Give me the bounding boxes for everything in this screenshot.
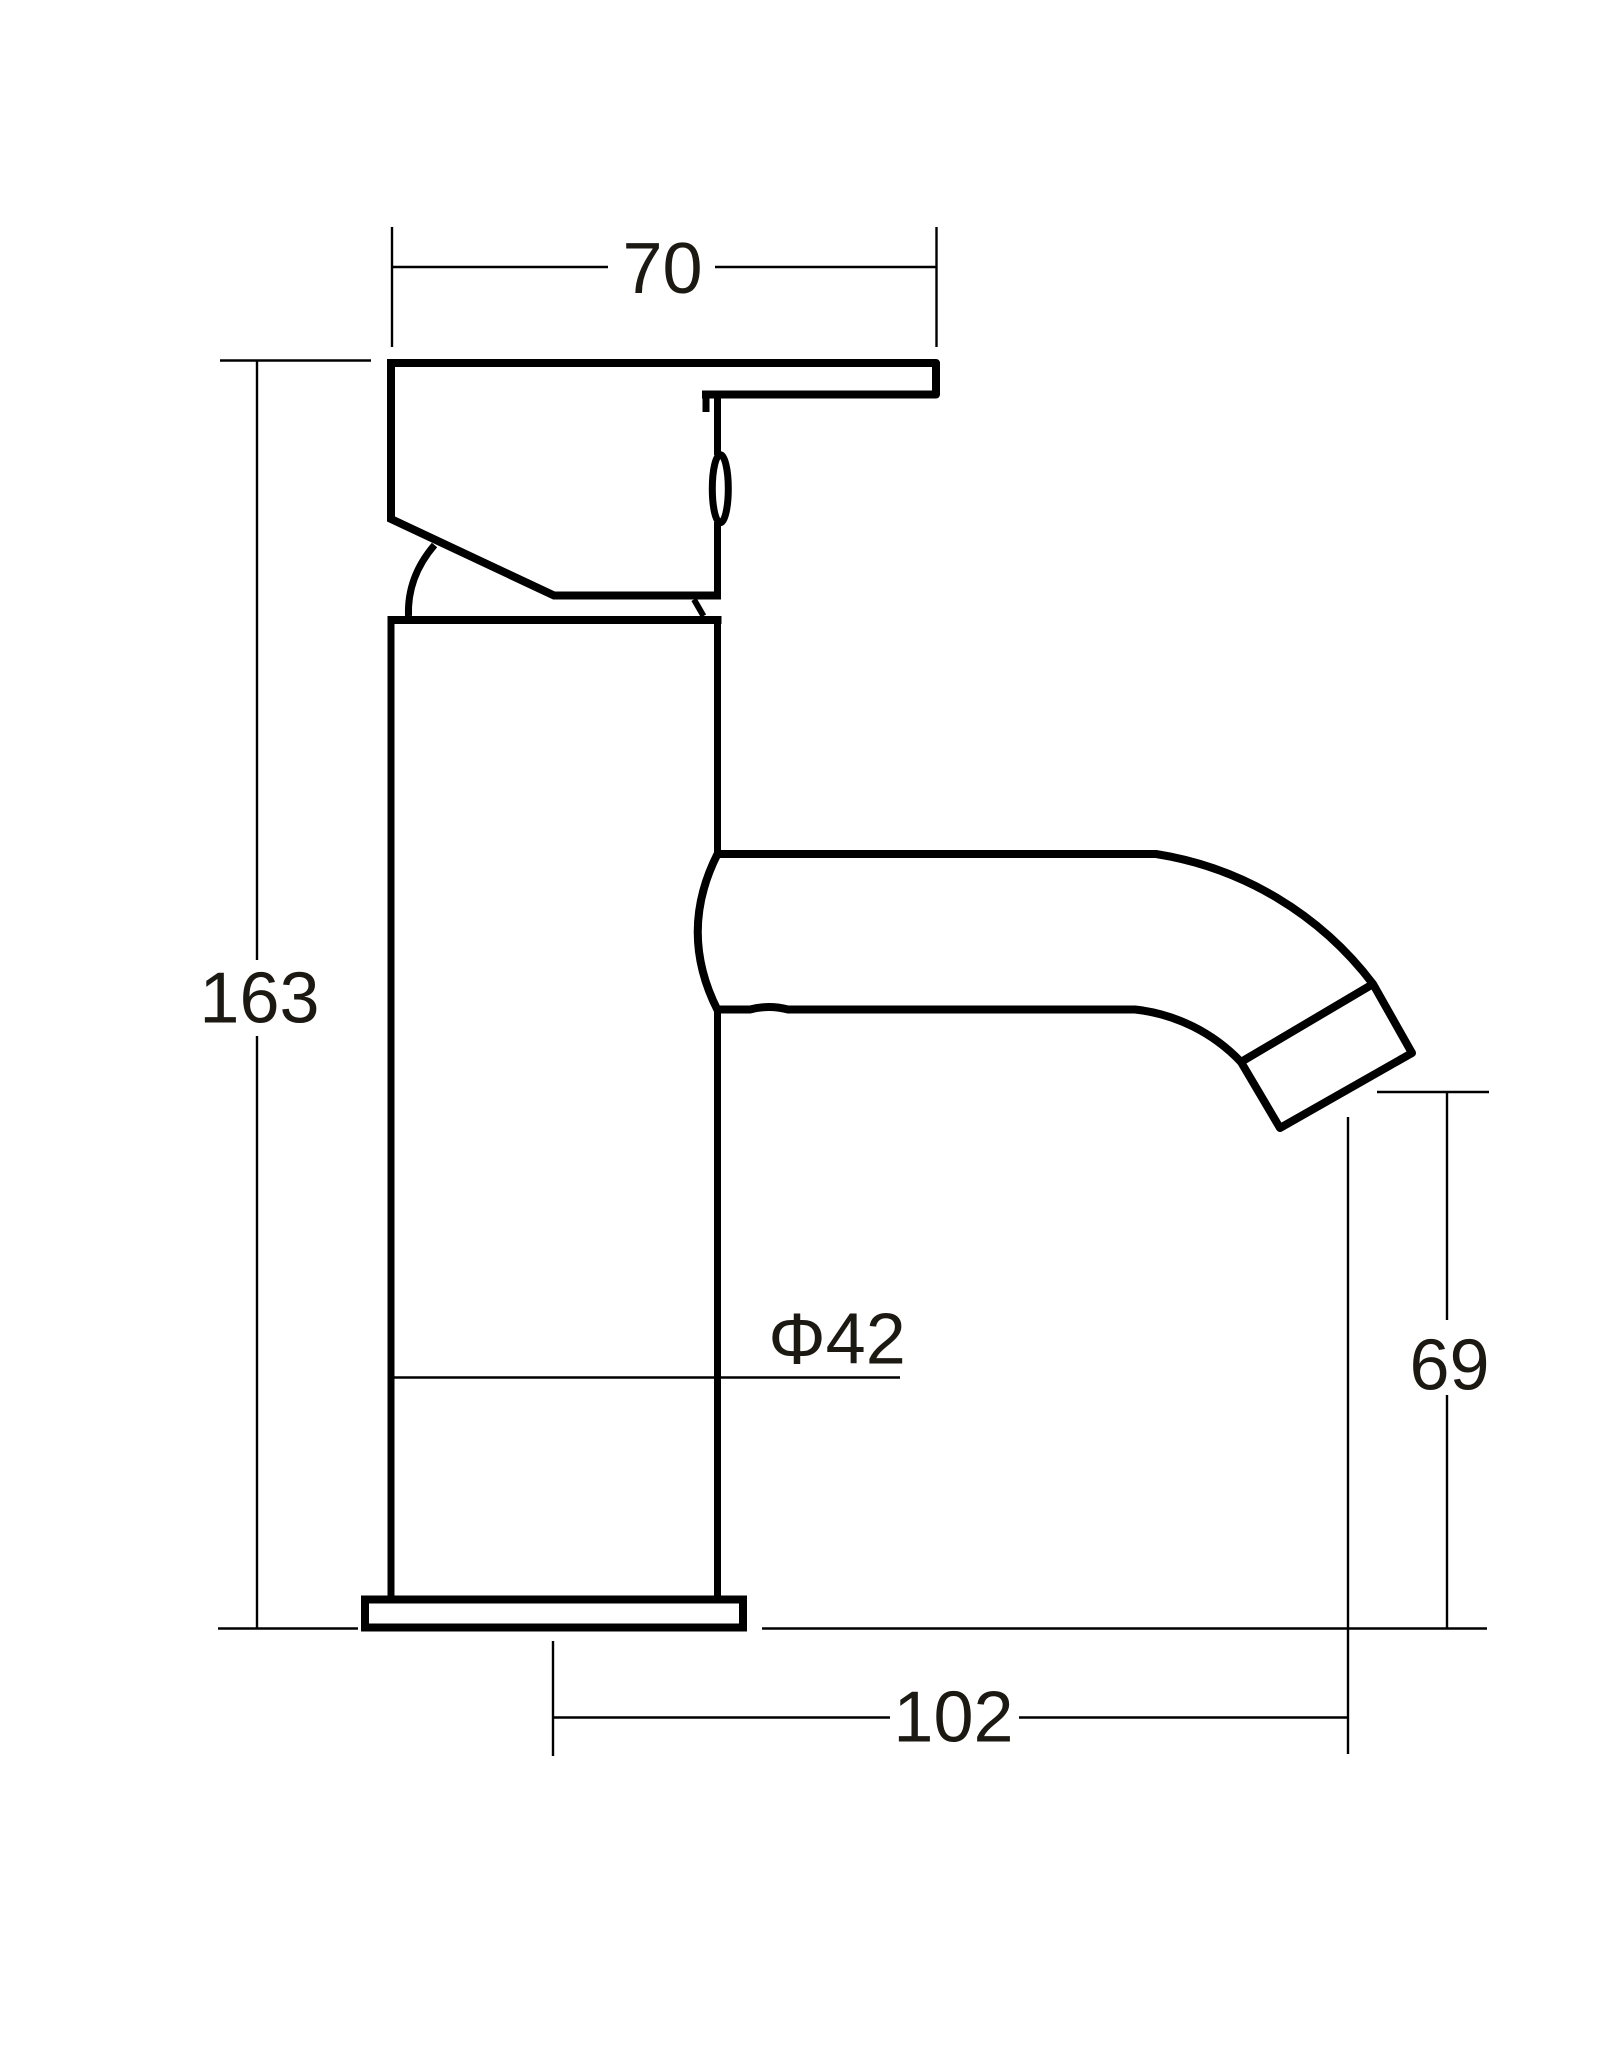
svg-text:Φ42: Φ42	[768, 1300, 906, 1380]
svg-text:163: 163	[199, 959, 319, 1039]
svg-text:70: 70	[622, 229, 702, 309]
svg-text:102: 102	[893, 1678, 1013, 1758]
svg-text:69: 69	[1409, 1326, 1489, 1406]
